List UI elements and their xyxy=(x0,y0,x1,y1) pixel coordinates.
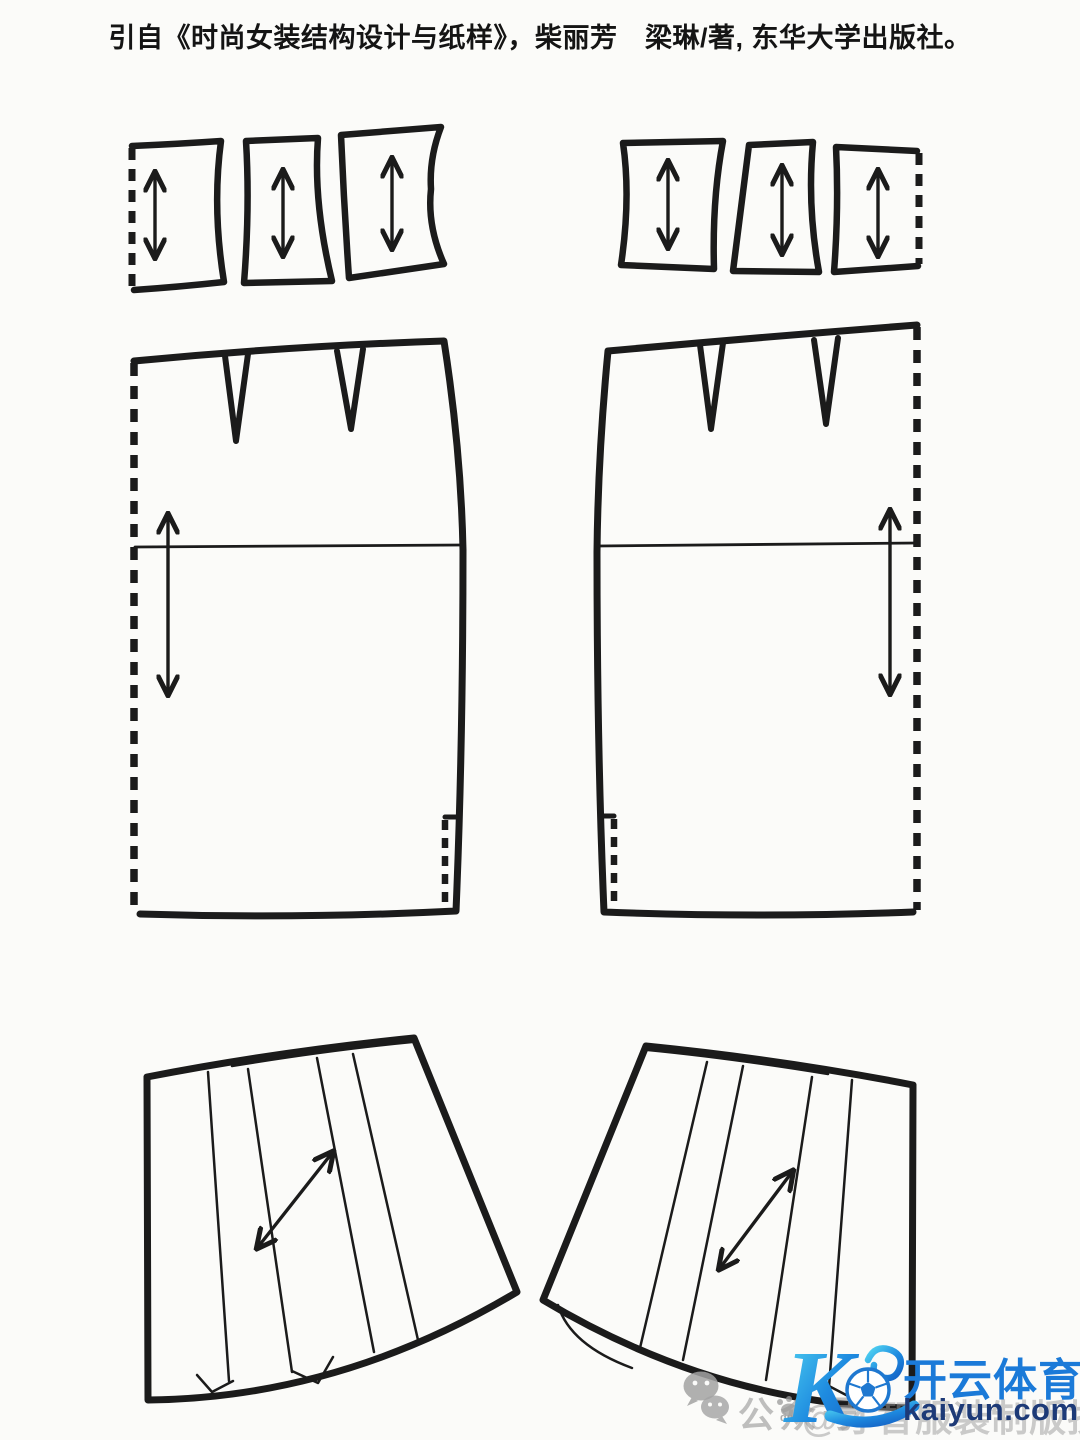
waistband-pieces-left xyxy=(132,127,444,290)
bias-grain-arrow-icon xyxy=(258,1153,332,1247)
waistband-piece xyxy=(341,127,444,278)
waistband-piece xyxy=(621,141,723,269)
slash-line xyxy=(248,1069,292,1372)
waist-dart xyxy=(337,349,363,429)
waistband-piece xyxy=(834,147,919,272)
overlap-corner xyxy=(827,1381,863,1396)
slash-line xyxy=(640,1062,707,1348)
waistband-pieces-right xyxy=(621,141,919,272)
slash-line xyxy=(766,1077,812,1380)
panel-outline xyxy=(543,1046,913,1408)
slash-line xyxy=(208,1072,229,1381)
waist-dart xyxy=(225,354,248,441)
hip-line xyxy=(598,543,916,546)
panel-outline xyxy=(147,1038,517,1400)
waist-dart xyxy=(700,343,723,429)
waist-dart xyxy=(814,338,838,424)
waistband-piece xyxy=(733,142,819,272)
flared-panel-right xyxy=(543,1046,913,1408)
skirt-panel-right xyxy=(597,325,917,915)
slash-line xyxy=(317,1058,374,1352)
panel-outline xyxy=(134,341,463,916)
slash-line xyxy=(829,1080,852,1387)
waistband-piece xyxy=(132,141,224,290)
bias-grain-arrow-icon xyxy=(720,1172,792,1268)
hip-line xyxy=(135,545,461,547)
scanned-page: 引自《时尚女装结构设计与纸样》，柴丽芳 梁琳/著, 东华大学出版社。 xyxy=(0,0,1080,1440)
waistband-piece xyxy=(244,138,332,283)
skirt-panel-left xyxy=(134,341,463,916)
panel-outline xyxy=(597,325,917,915)
slash-line xyxy=(683,1066,743,1360)
flared-panel-left xyxy=(147,1038,517,1400)
skirt-pattern-diagram xyxy=(0,0,1080,1440)
